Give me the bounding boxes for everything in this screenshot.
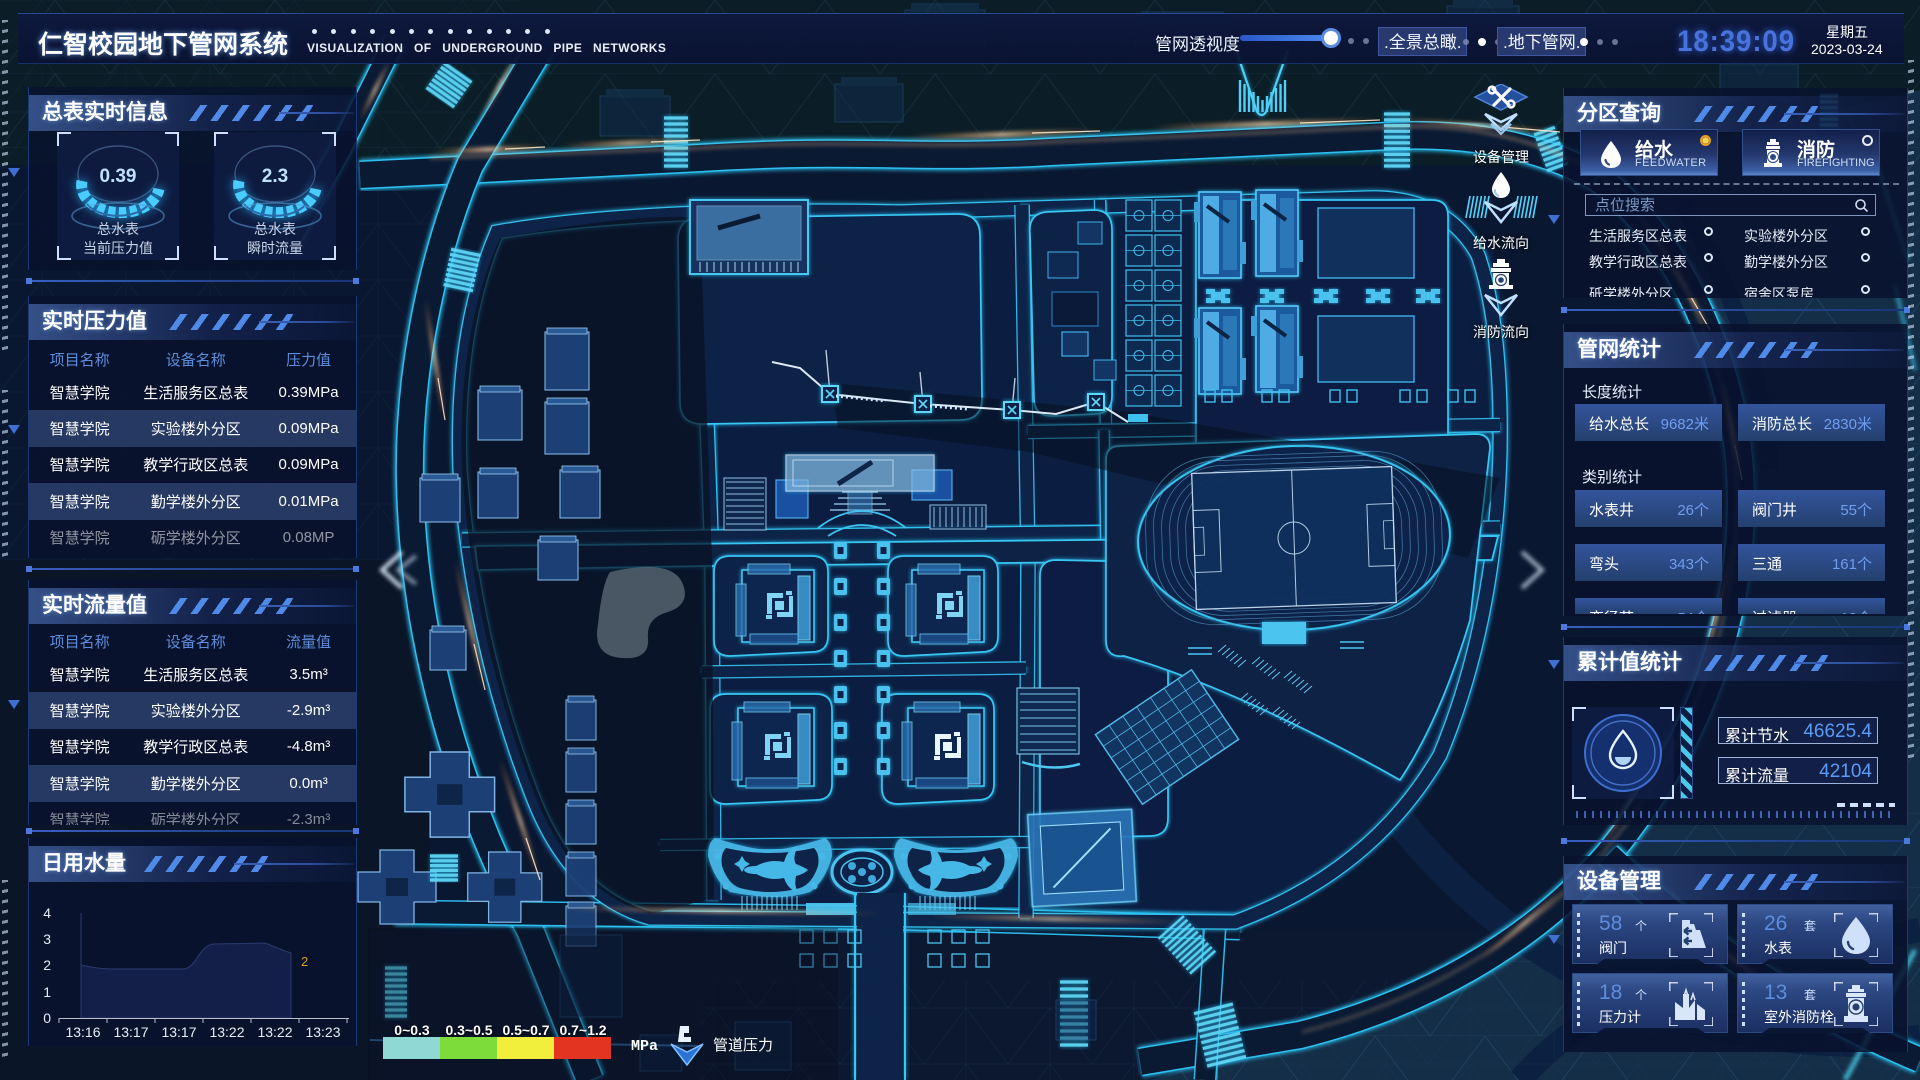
svg-text:3: 3 — [43, 931, 51, 947]
svg-text:0: 0 — [43, 1010, 51, 1026]
svg-text:13:23: 13:23 — [305, 1024, 340, 1040]
svg-text:13:22: 13:22 — [209, 1024, 244, 1040]
svg-text:4: 4 — [43, 905, 51, 921]
svg-text:2: 2 — [301, 954, 308, 969]
svg-text:13:17: 13:17 — [161, 1024, 196, 1040]
svg-text:1: 1 — [43, 984, 51, 1000]
svg-text:13:22: 13:22 — [257, 1024, 292, 1040]
svg-text:2: 2 — [43, 957, 51, 973]
svg-text:13:16: 13:16 — [65, 1024, 100, 1040]
svg-text:13:17: 13:17 — [113, 1024, 148, 1040]
